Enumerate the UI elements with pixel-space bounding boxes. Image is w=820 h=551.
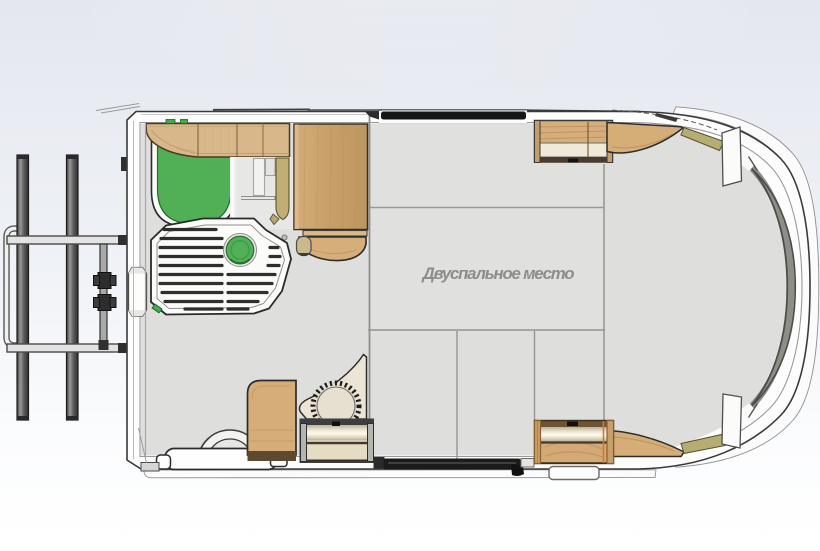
- svg-text:Двуспальное место: Двуспальное место: [421, 264, 575, 283]
